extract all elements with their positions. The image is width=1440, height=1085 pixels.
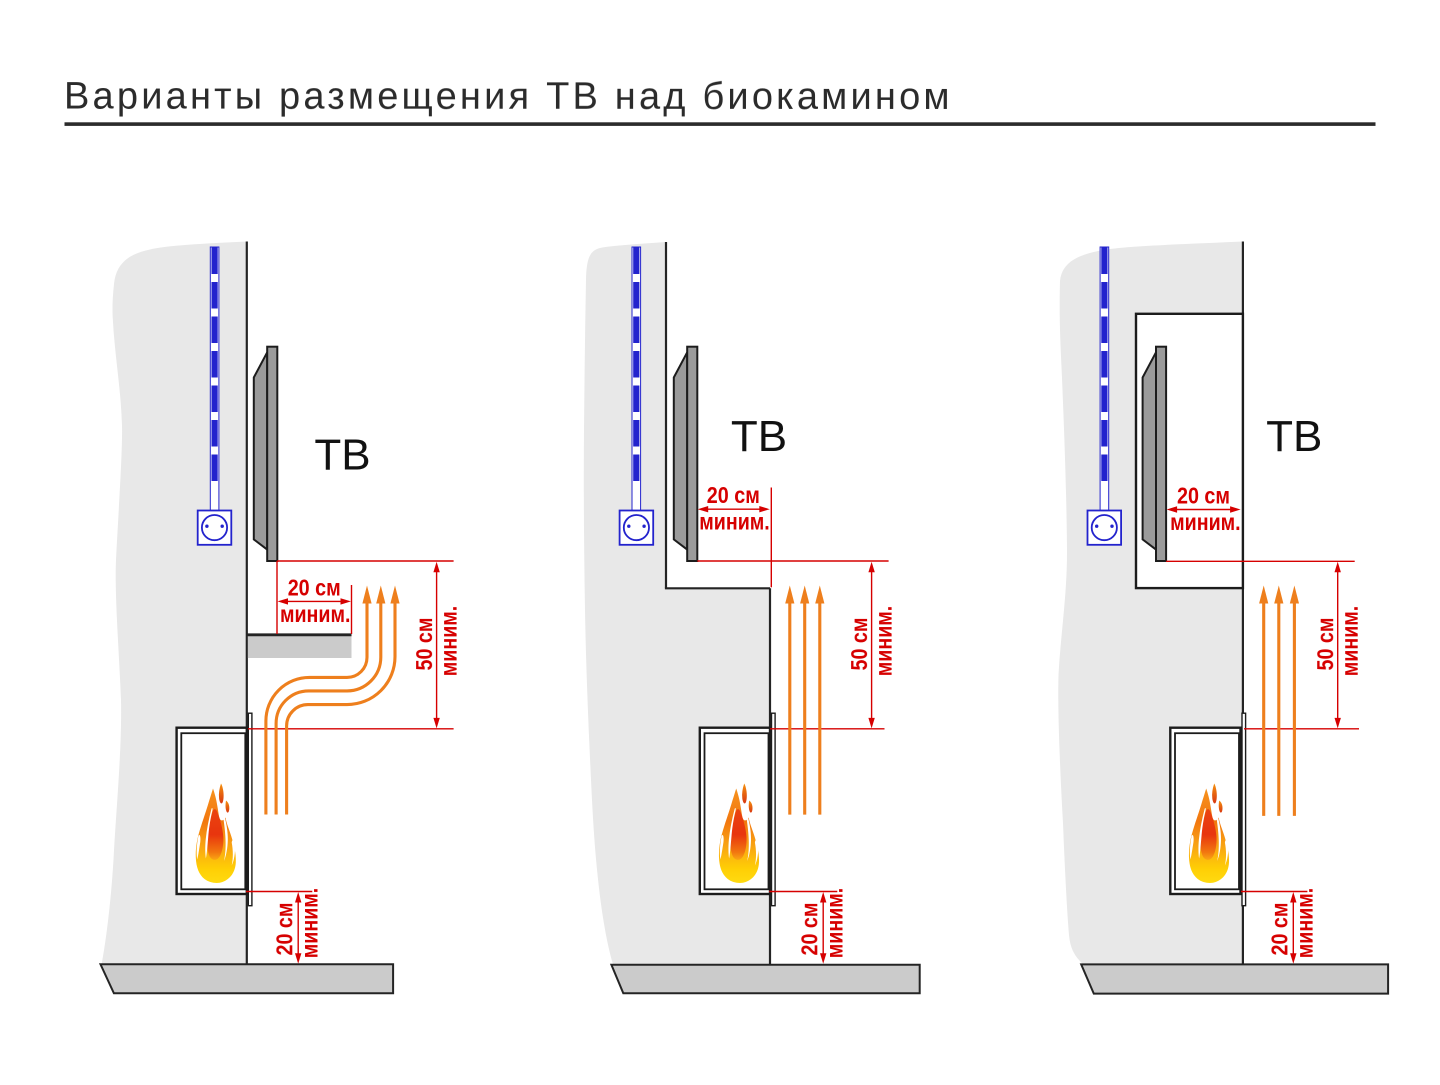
svg-text:50 см: 50 см <box>1312 618 1338 671</box>
svg-text:ТВ: ТВ <box>731 412 787 461</box>
svg-text:50 см: 50 см <box>846 618 872 671</box>
svg-text:миним.: миним. <box>871 606 897 677</box>
svg-text:ТВ: ТВ <box>314 431 370 480</box>
svg-text:Варианты размещения ТВ над био: Варианты размещения ТВ над биокамином <box>64 76 953 118</box>
svg-text:миним.: миним. <box>436 606 462 677</box>
svg-text:20 см: 20 см <box>707 482 760 508</box>
svg-text:20 см: 20 см <box>796 903 822 956</box>
svg-text:миним.: миним. <box>822 888 848 959</box>
svg-text:50 см: 50 см <box>411 618 437 671</box>
svg-text:20 см: 20 см <box>1177 482 1230 508</box>
svg-text:20 см: 20 см <box>271 903 297 956</box>
svg-text:миним.: миним. <box>1337 606 1363 677</box>
svg-text:миним.: миним. <box>699 509 770 535</box>
svg-text:миним.: миним. <box>280 601 351 627</box>
svg-text:миним.: миним. <box>1292 888 1318 959</box>
svg-text:миним.: миним. <box>1170 509 1241 535</box>
svg-text:ТВ: ТВ <box>1266 412 1322 461</box>
svg-text:20 см: 20 см <box>1266 903 1292 956</box>
svg-text:миним.: миним. <box>297 888 323 959</box>
svg-text:20 см: 20 см <box>288 574 341 600</box>
